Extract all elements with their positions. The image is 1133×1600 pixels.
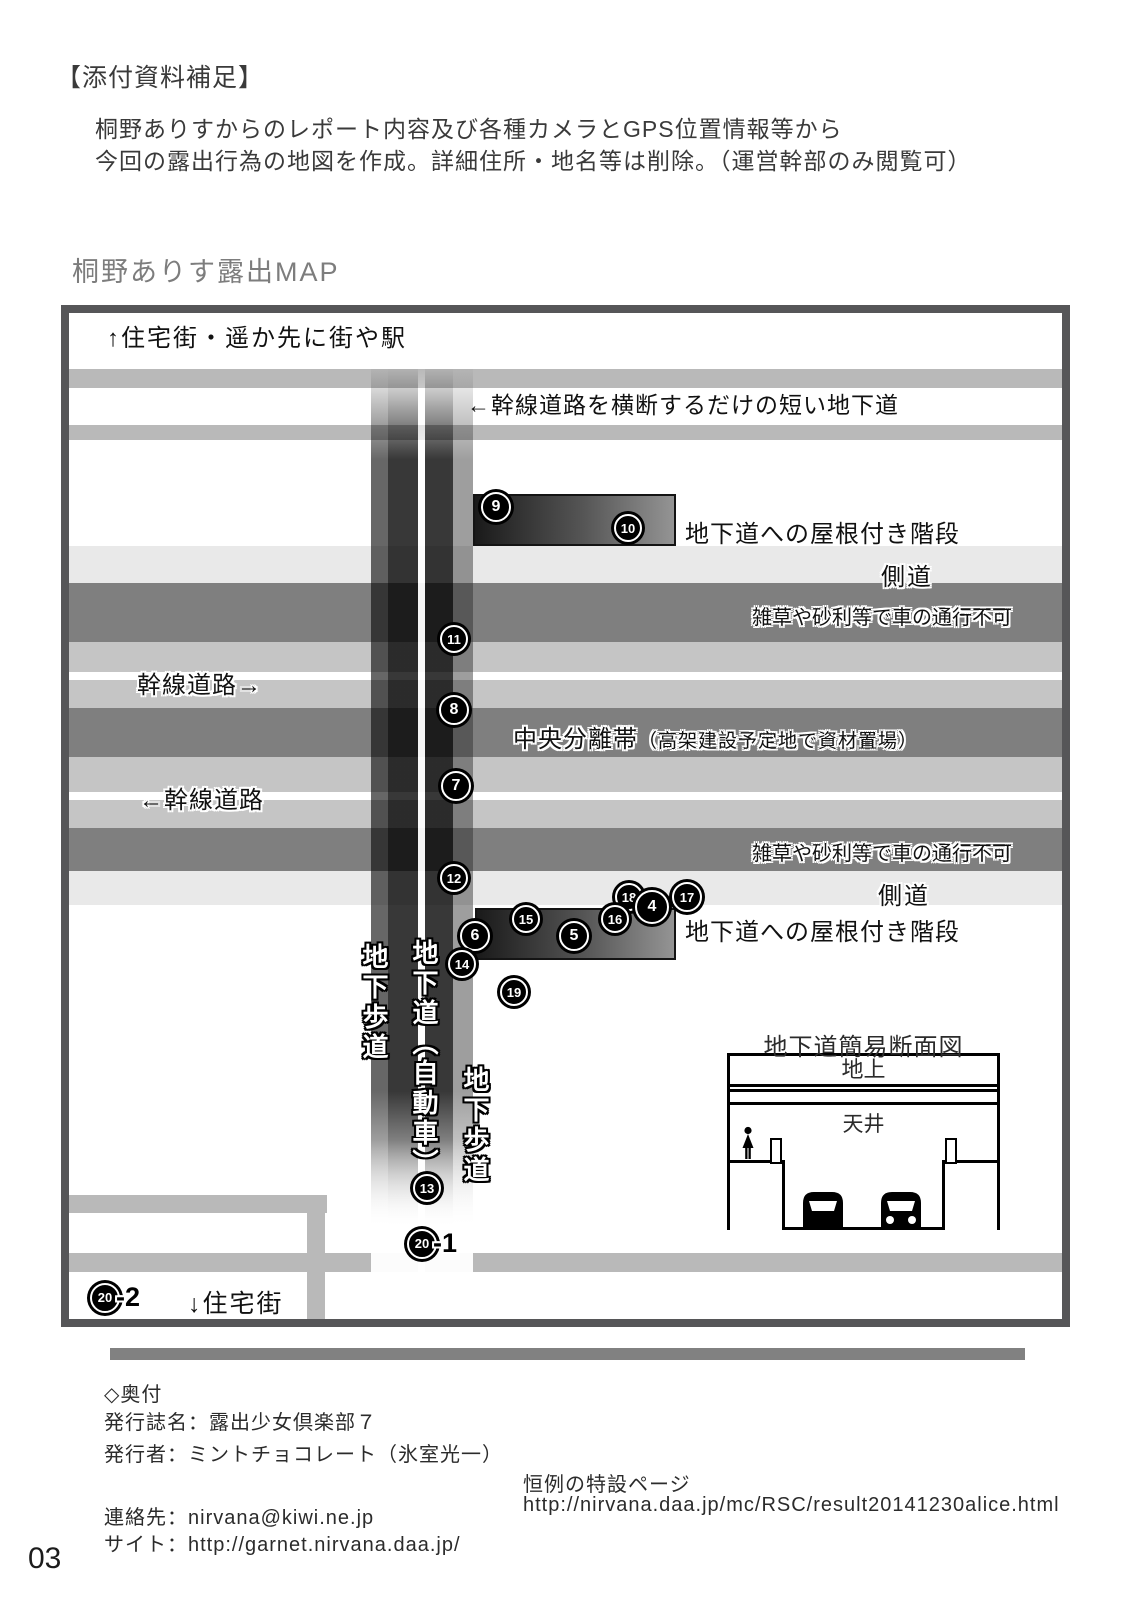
label-weeds-top: 雑草や砂利等で車の通行不可 — [752, 601, 1012, 630]
attachment-note-line1: 桐野ありすからのレポート内容及び各種カメラとGPS位置情報等から — [95, 110, 843, 144]
label-median-note: （高架建設予定地で資材置場） — [638, 731, 918, 752]
map-pin-20-2: 20-2 — [90, 1282, 140, 1313]
roofed-stairs-bottom — [475, 908, 676, 960]
label-roofed-stairs-bottom: 地下道への屋根付き階段 — [685, 912, 960, 947]
cross-section-barrier-right — [945, 1138, 957, 1164]
residential-road-horizontal-1 — [69, 1195, 327, 1213]
label-main-road-eastbound: 幹線道路→ — [137, 665, 262, 700]
label-auto-underpass: 地下道（自動車） — [406, 939, 443, 1179]
cross-section-ceiling-label: 天井 — [730, 1108, 997, 1138]
map-title: 桐野ありす露出MAP — [72, 250, 340, 289]
cross-section-diagram: 地上 天井 — [727, 1053, 1000, 1230]
special-page-url: http://nirvana.daa.jp/mc/RSC/result20141… — [523, 1494, 1060, 1517]
cross-section-slab — [730, 1089, 997, 1105]
cross-section-barrier-left — [770, 1138, 782, 1164]
exposure-map: ↑住宅街・遥か先に街や駅 ←幹線道路を横断するだけの短い地下道 地下道への屋根付… — [61, 305, 1070, 1327]
map-pin-suffix: -2 — [116, 1282, 140, 1313]
label-weeds-bottom: 雑草や砂利等で車の通行不可 — [752, 837, 1012, 866]
colophon-contact: 連絡先：nirvana@kiwi.ne.jp — [104, 1501, 374, 1530]
attachment-note-heading: 【添付資料補足】 — [56, 58, 264, 94]
label-side-road-top: 側道 — [881, 557, 933, 592]
label-side-road-bottom: 側道 — [878, 876, 930, 911]
label-ped-underpass-right: 地下歩道 — [457, 1066, 494, 1186]
roofed-stairs-top — [473, 494, 676, 546]
map-pin-19: 19 — [500, 978, 528, 1006]
label-ped-underpass-left: 地下歩道 — [356, 943, 393, 1063]
road-band-top-2 — [69, 425, 1062, 440]
cross-section-title: 地下道簡易断面図 — [727, 1027, 1000, 1062]
car-icon — [798, 1189, 848, 1229]
colophon-site: サイト：http://garnet.nirvana.daa.jp/ — [104, 1528, 461, 1557]
car-icon — [876, 1189, 926, 1229]
label-roofed-stairs-top: 地下道への屋根付き階段 — [685, 514, 960, 549]
page-number: 03 — [28, 1542, 61, 1576]
label-median-main: 中央分離帯 — [513, 726, 638, 753]
label-main-road-westbound: ←幹線道路 — [139, 780, 264, 815]
document-page: 【添付資料補足】 桐野ありすからのレポート内容及び各種カメラとGPS位置情報等か… — [0, 0, 1133, 1600]
special-page-label: 恒例の特設ページ — [523, 1468, 691, 1497]
attachment-note-line2: 今回の露出行為の地図を作成。詳細住所・地名等は削除。（運営幹部のみ閲覧可） — [95, 142, 972, 176]
label-short-underpass: ←幹線道路を横断するだけの短い地下道 — [467, 386, 899, 420]
label-south: ↓住宅街 — [188, 1284, 284, 1320]
label-north: ↑住宅街・遥か先に街や駅 — [107, 318, 407, 353]
person-icon — [740, 1126, 756, 1162]
map-pin-14: 14 — [448, 950, 476, 978]
residential-road-horizontal-2 — [69, 1253, 1062, 1272]
cross-section-platform-right — [942, 1160, 997, 1230]
cross-section-platform-left — [730, 1160, 785, 1230]
colophon-publisher: 発行者：ミントチョコレート（氷室光一） — [104, 1438, 503, 1467]
label-median: 中央分離帯（高架建設予定地で資材置場） — [513, 719, 918, 754]
separator-bar — [110, 1348, 1025, 1360]
colophon-publication: 発行誌名：露出少女倶楽部７ — [104, 1406, 377, 1435]
colophon-heading: ◇奥付 — [104, 1378, 162, 1407]
